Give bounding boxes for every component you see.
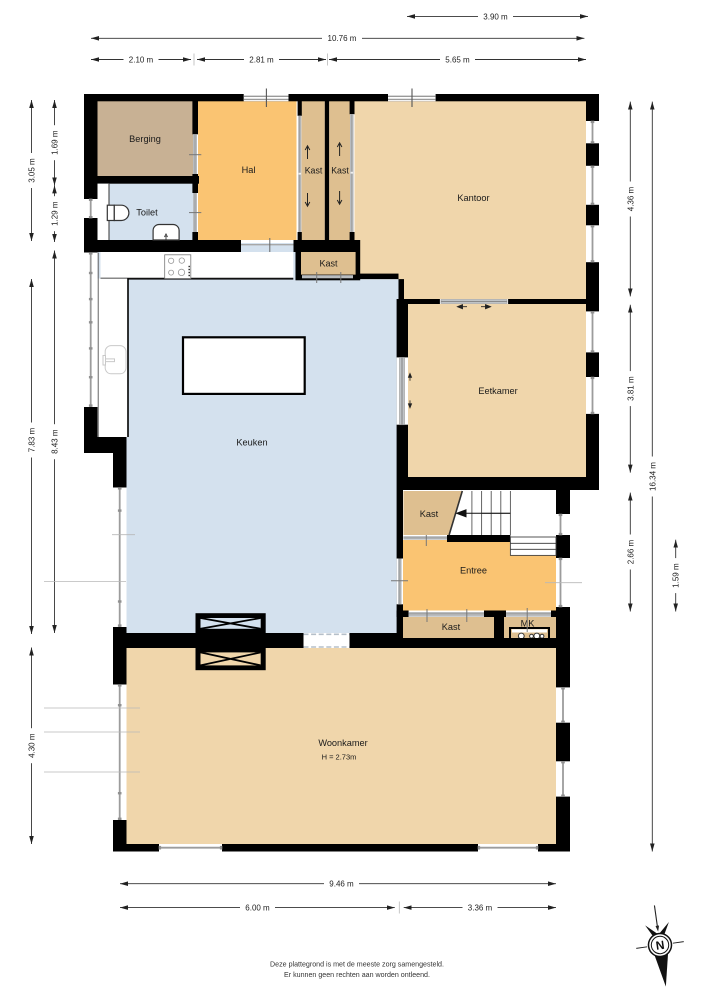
svg-text:10.76 m: 10.76 m: [328, 34, 357, 43]
svg-text:2.66 m: 2.66 m: [626, 539, 635, 564]
svg-text:Keuken: Keuken: [236, 438, 267, 448]
svg-text:3.36 m: 3.36 m: [468, 904, 493, 913]
svg-text:Kantoor: Kantoor: [457, 193, 489, 203]
svg-text:Kast: Kast: [319, 259, 338, 269]
svg-text:4.36 m: 4.36 m: [626, 186, 635, 211]
svg-text:H = 2.73m: H = 2.73m: [322, 753, 357, 762]
svg-text:Eetkamer: Eetkamer: [478, 386, 517, 396]
svg-text:16.34 m: 16.34 m: [648, 462, 657, 491]
svg-text:Woonkamer: Woonkamer: [318, 738, 367, 748]
svg-text:1.59 m: 1.59 m: [672, 563, 681, 588]
svg-text:9.46 m: 9.46 m: [329, 880, 354, 889]
svg-text:6.00 m: 6.00 m: [245, 904, 270, 913]
svg-text:2.10 m: 2.10 m: [129, 55, 154, 64]
svg-text:Hal: Hal: [242, 165, 256, 175]
svg-text:Entree: Entree: [460, 566, 487, 576]
svg-text:Kast: Kast: [331, 166, 349, 176]
svg-text:3.81 m: 3.81 m: [626, 376, 635, 401]
svg-text:Berging: Berging: [129, 134, 161, 144]
svg-text:Deze plattegrond is met de mee: Deze plattegrond is met de meeste zorg s…: [270, 961, 444, 969]
svg-text:7.83 m: 7.83 m: [28, 427, 37, 452]
svg-text:Kast: Kast: [305, 166, 323, 176]
svg-text:1.69 m: 1.69 m: [51, 130, 60, 155]
svg-text:Kast: Kast: [420, 509, 439, 519]
svg-text:4.30 m: 4.30 m: [28, 733, 37, 758]
svg-text:Toilet: Toilet: [136, 208, 158, 218]
svg-text:Er kunnen geen rechten aan wor: Er kunnen geen rechten aan worden ontlee…: [284, 971, 430, 979]
svg-text:Kast: Kast: [442, 622, 461, 632]
svg-text:2.81 m: 2.81 m: [249, 55, 274, 64]
svg-text:8.43 m: 8.43 m: [51, 429, 60, 454]
svg-text:5.65 m: 5.65 m: [445, 55, 470, 64]
svg-text:3.90 m: 3.90 m: [483, 12, 508, 21]
svg-text:1.29 m: 1.29 m: [51, 201, 60, 226]
svg-text:3.05 m: 3.05 m: [28, 158, 37, 183]
